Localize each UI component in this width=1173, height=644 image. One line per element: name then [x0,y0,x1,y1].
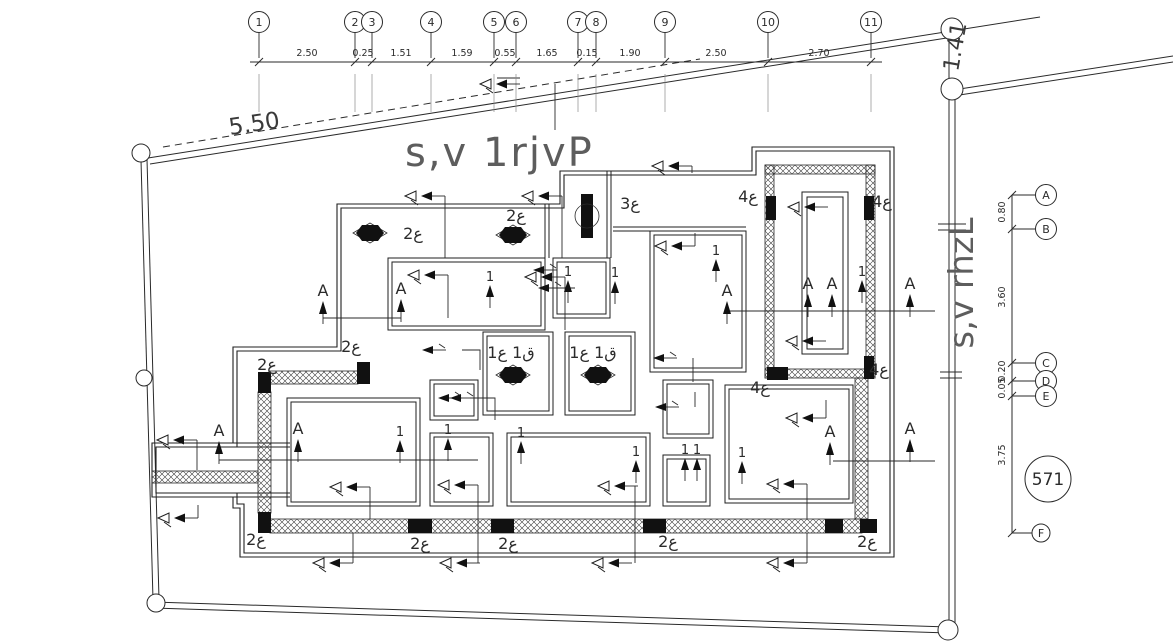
switch-arrow-icon [421,192,432,201]
room-label: 2ع [246,530,266,550]
section-marker-label: A [722,281,733,300]
grid-bubble-label: C [1042,357,1050,370]
switch-arrow-icon [454,481,465,490]
room-label: 4ع [750,378,770,398]
dimension-value: 0.25 [352,48,373,59]
switch-arrow-icon [783,480,794,489]
grid-bubble-label: 4 [428,16,435,29]
circuit-arrow-up [396,440,404,452]
switch-arrow-icon [788,202,799,212]
circuit-arrow-up [517,441,525,453]
survey-point [147,594,165,612]
circuit-arrow-up [738,461,746,473]
grid-bubble-label: 11 [864,16,878,29]
section-arrow-up [828,294,836,307]
top-grid-axis: 12345678910112.500.251.511.590.551.650.1… [249,12,883,113]
detail-bubble-label: 571 [1032,470,1064,490]
circuit-arrow-up [693,458,701,470]
dimension-value: 1.51 [390,48,411,59]
survey-point [132,144,150,162]
grid-bubble-label: 8 [593,16,600,29]
section-arrow-up [906,294,914,307]
circuit-number-label: 1 [681,443,689,458]
site-boundary [132,17,1173,640]
survey-point [941,78,963,100]
section-marker-label: A [905,274,916,293]
branch-arrow-icon [422,346,433,354]
circuit-line [462,350,480,370]
switch-arrow-icon [786,413,797,423]
grid-bubble-label: A [1042,189,1050,202]
branch-arrow-icon [672,401,678,405]
room-label: 4ع [872,192,892,212]
circuit-number-label: 1 [396,425,404,440]
room-label: 2ع [410,534,430,554]
circuit-arrow-up [858,280,866,292]
section-marker-label: A [905,419,916,438]
section-arrow-up [826,442,834,455]
branch-arrow-icon [438,394,449,402]
room-label: 2ع [506,206,526,226]
switch-arrow-icon [522,191,533,201]
survey-point [938,620,958,640]
circuit-number-label: 1 [444,423,452,438]
survey-point [136,370,152,386]
switch-arrow-icon [538,192,549,201]
interior-walls [233,171,853,506]
right-grid-axis: ABCDEF0.803.600.200.053.75571 [997,185,1071,543]
switch-arrow-icon [802,414,813,423]
switch-arrow-icon [174,514,185,523]
grid-bubble-label: 3 [369,16,376,29]
circuit-arrow-up [632,460,640,472]
grid-bubble-label: 9 [662,16,669,29]
branch-arrow-icon [653,354,664,362]
columns [258,196,877,533]
branch-arrow-icon [670,352,676,356]
switch-arrow-icon [496,80,507,89]
branch-arrow-icon [467,392,473,396]
room-label: 3ع [620,194,640,214]
switch-arrow-icon [767,558,778,568]
boundary-dim-top: 5.50 [227,108,281,141]
branch-arrow-icon [555,282,561,286]
section-marker-label: A [825,422,836,441]
branch-arrow-icon [450,394,461,402]
switch-arrow-icon [608,559,619,568]
dimension-value: 1.90 [619,48,640,59]
grid-bubble-label: 2 [352,16,359,29]
circuit-number-label: 1 [858,265,866,280]
plan-title-text: s,v 1rjvP [405,130,594,176]
side-title-text: s,v rhzL [942,217,982,348]
dimension-value: 2.50 [705,48,726,59]
switch-arrow-icon [767,479,778,489]
switch-arrow-icon [652,161,663,171]
section-marker-label: A [214,421,225,440]
switch-arrow-icon [405,191,416,201]
switch-arrow-icon [541,273,552,282]
switch-arrow-icon [330,482,341,492]
grid-bubble-label: 7 [575,16,582,29]
dimension-value: 2.70 [808,48,829,59]
section-arrow-up [723,301,731,314]
circuit-arrow-up [486,285,494,297]
ceiling-fan-icon [356,225,384,241]
section-arrow-up [906,439,914,452]
branch-arrow-icon [538,284,549,292]
section-marker-label: A [318,281,329,300]
switch-arrow-icon [329,559,340,568]
switch-arrow-icon [346,483,357,492]
room-label: 2ع [658,532,678,552]
circuit-arrow-up [444,438,452,450]
dimension-value: 1.59 [451,48,472,59]
room-label: 1ع 1ق [569,343,616,363]
switch-arrow-icon [440,558,451,568]
grid-bubble-label: F [1038,527,1044,540]
floor-plan-canvas: s,v 1rjvP s,v rhzL 5.50 1.41 12345678910… [0,0,1173,644]
circuit-number-label: 1 [738,446,746,461]
room-label: 2ع [257,355,277,375]
switch-arrow-icon [783,559,794,568]
switch-arrow-icon [480,79,491,89]
room-label: 2ع [403,224,423,244]
dimension-value: 3.60 [997,286,1008,307]
switch-arrow-icon [668,162,679,171]
switch-arrow-icon [671,242,682,251]
switch-arrow-icon [614,482,625,491]
grid-bubble-label: B [1042,223,1050,236]
section-arrow-up [804,294,812,307]
room-label: 1ع 1ق [487,343,534,363]
branch-arrow-icon [655,403,666,411]
switch-arrow-icon [525,272,536,282]
section-marker-label: A [803,274,814,293]
grid-bubble-label: 10 [761,16,775,29]
dimension-value: 0.15 [576,48,597,59]
section-arrow-up [397,299,405,312]
switch-arrow-icon [804,203,815,212]
switch-arrow-icon [456,559,467,568]
switch-arrow-icon [408,270,419,280]
circuit-number-label: 1 [712,244,720,259]
circuit-number-label: 1 [611,266,619,281]
section-marker-label: A [293,419,304,438]
ceiling-fan-icon [499,367,527,383]
dimension-value: 0.05 [997,377,1008,398]
switch-arrow-icon [158,513,169,523]
wall-fan-icon [581,194,593,238]
switch-arrow-icon [313,558,324,568]
ceiling-fan-icon [584,367,612,383]
grid-bubble-label: 5 [491,16,498,29]
circuit-number-label: 1 [564,265,572,280]
switch-arrow-icon [598,481,609,491]
room-label: 2ع [341,337,361,357]
grid-bubble-label: E [1043,390,1050,403]
circuit-number-label: 1 [693,443,701,458]
circuit-number-label: 1 [486,270,494,285]
room-label: 2ع [498,534,518,554]
switch-arrow-icon [655,241,666,251]
dimension-value: 0.80 [997,201,1008,222]
section-arrow-up [319,301,327,314]
room-label: 4ع [738,187,758,207]
room-label: 2ع [857,532,877,552]
dimension-value: 3.75 [997,444,1008,465]
grid-bubble-label: 6 [513,16,520,29]
circuit-number-label: 1 [517,426,525,441]
ceiling-fan-icon [499,227,527,243]
dimension-value: 0.55 [494,48,515,59]
dimension-value: 2.50 [296,48,317,59]
branch-arrow-icon [439,344,445,348]
section-marker-label: A [827,274,838,293]
grid-bubble-label: 1 [256,16,263,29]
circuit-number-label: 1 [632,445,640,460]
circuit-arrow-up [611,281,619,293]
switch-arrow-icon [424,271,435,280]
switch-arrow-icon [438,480,449,490]
dimension-value: 1.65 [536,48,557,59]
circuit-arrow-up [681,458,689,470]
switch-arrow-icon [786,336,797,346]
section-arrow-up [294,439,302,452]
switch-arrow-icon [592,558,603,568]
cad-floor-plan-screenshot: s,v 1rjvP s,v rhzL 5.50 1.41 12345678910… [0,0,1173,644]
circuit-arrow-up [712,259,720,271]
room-label: 4ع [869,360,889,380]
section-marker-label: A [396,279,407,298]
